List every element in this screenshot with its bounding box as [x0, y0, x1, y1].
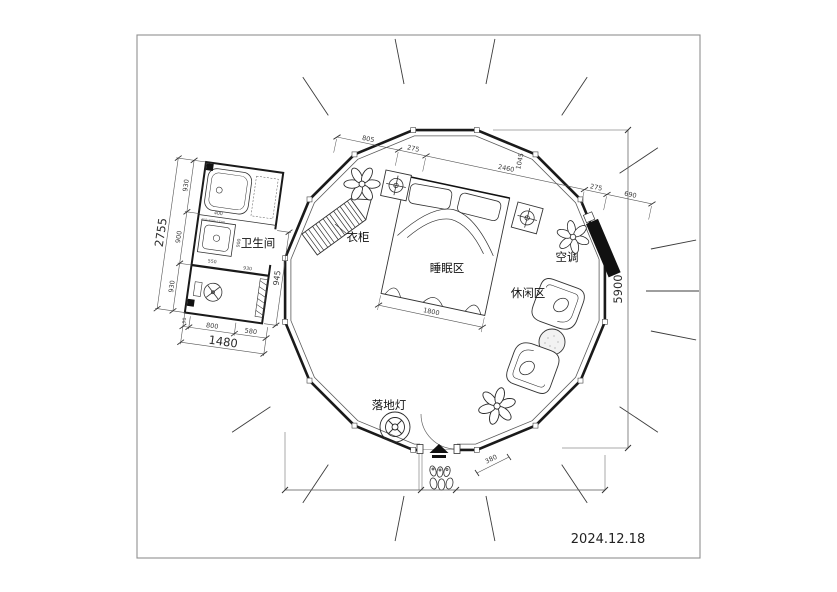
column: [187, 299, 195, 307]
door-jamb-left: [417, 445, 423, 454]
floor-lamp-label: 落地灯: [372, 398, 407, 412]
sleeping-area-label: 睡眠区: [430, 261, 465, 275]
drawing-date: 2024.12.18: [571, 532, 645, 547]
dim-sink: 550: [207, 258, 217, 265]
floor-plan-canvas: 1800 睡眠区 衣柜: [0, 0, 837, 592]
dim-tub: 400: [214, 210, 224, 217]
dim-930b: 930: [167, 280, 177, 293]
bathroom-label: 卫生间: [241, 236, 276, 250]
nightstand-left: [381, 170, 412, 201]
floor-plan-page: 1800 睡眠区 衣柜: [0, 0, 837, 592]
dim-90: 90: [181, 317, 188, 324]
dim-580: 580: [244, 327, 257, 337]
column: [206, 163, 214, 171]
dim-900: 900: [174, 230, 184, 243]
dim-5900: 5900: [611, 274, 625, 303]
door-jamb-right: [454, 445, 460, 454]
leisure-area-label: 休闲区: [511, 286, 546, 300]
dim-800: 800: [206, 321, 219, 331]
bathtub: [203, 168, 252, 216]
dim-930a: 930: [181, 179, 191, 192]
wardrobe-label: 衣柜: [347, 230, 370, 244]
